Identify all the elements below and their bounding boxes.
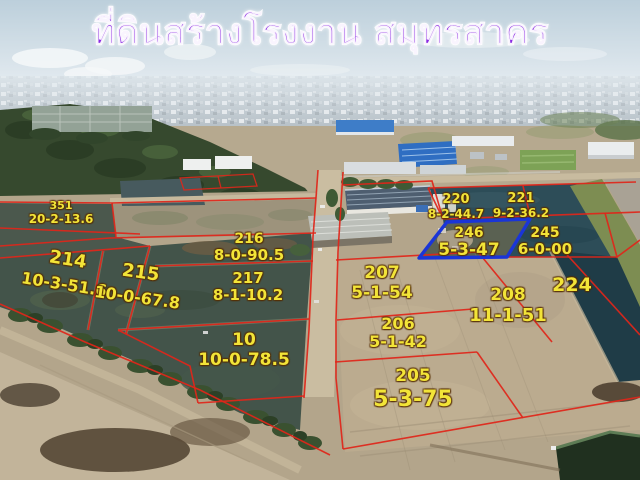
plot-number: 216 — [214, 231, 284, 247]
plot-number: 245 — [518, 225, 572, 241]
plot-area: 20-2-13.6 — [29, 213, 94, 227]
distant-pond-grid — [29, 106, 152, 144]
plot-area: 10-0-78.5 — [198, 351, 290, 371]
plot-label-351: 351 20-2-13.6 — [29, 200, 94, 226]
plot-label-220: 220 8-2-44.7 — [428, 193, 484, 222]
plot-label-206: 206 5-1-42 — [369, 315, 427, 352]
plot-number: 10 — [198, 331, 290, 351]
plot-label-205: 205 5-3-75 — [373, 367, 453, 412]
plot-area: 6-0-00 — [518, 241, 572, 258]
plot-label-10: 10 10-0-78.5 — [198, 331, 290, 370]
plot-number: 205 — [373, 367, 453, 387]
plot-label-224: 224 — [552, 275, 592, 297]
plot-label-245: 245 6-0-00 — [518, 225, 572, 258]
plot-area: 8-0-90.5 — [214, 247, 284, 264]
plot-area: 11-1-51 — [469, 306, 547, 327]
plot-area: 8-2-44.7 — [428, 208, 484, 222]
plot-label-246: 246 5-3-47 — [438, 225, 499, 261]
plot-label-207: 207 5-1-54 — [351, 264, 412, 303]
plot-area: 5-1-54 — [351, 284, 412, 304]
plot-number: 351 — [29, 200, 94, 213]
plot-area: 5-3-47 — [438, 241, 499, 261]
plot-number: 206 — [369, 315, 427, 333]
plot-number: 224 — [552, 275, 592, 297]
plot-number: 208 — [469, 286, 547, 306]
plot-area: 9-2-36.2 — [493, 207, 549, 221]
plot-number: 220 — [428, 193, 484, 208]
plot-label-216: 216 8-0-90.5 — [214, 231, 284, 264]
plot-number: 207 — [351, 264, 412, 284]
warehouse-building — [308, 212, 392, 248]
plot-number: 221 — [493, 192, 549, 207]
plot-label-221: 221 9-2-36.2 — [493, 192, 549, 221]
aerial-land-listing: ที่ดินสร้างโรงงาน สมุทรสาคร 351 20-2-13.… — [0, 0, 640, 480]
plot-number: 246 — [438, 225, 499, 241]
plot-area: 8-1-10.2 — [213, 287, 283, 304]
plot-label-217: 217 8-1-10.2 — [213, 270, 283, 305]
plot-area: 5-1-42 — [369, 333, 427, 351]
plot-area: 5-3-75 — [373, 387, 453, 412]
plot-label-208: 208 11-1-51 — [469, 286, 547, 326]
plot-number: 217 — [213, 270, 283, 287]
page-title: ที่ดินสร้างโรงงาน สมุทรสาคร — [92, 10, 548, 57]
